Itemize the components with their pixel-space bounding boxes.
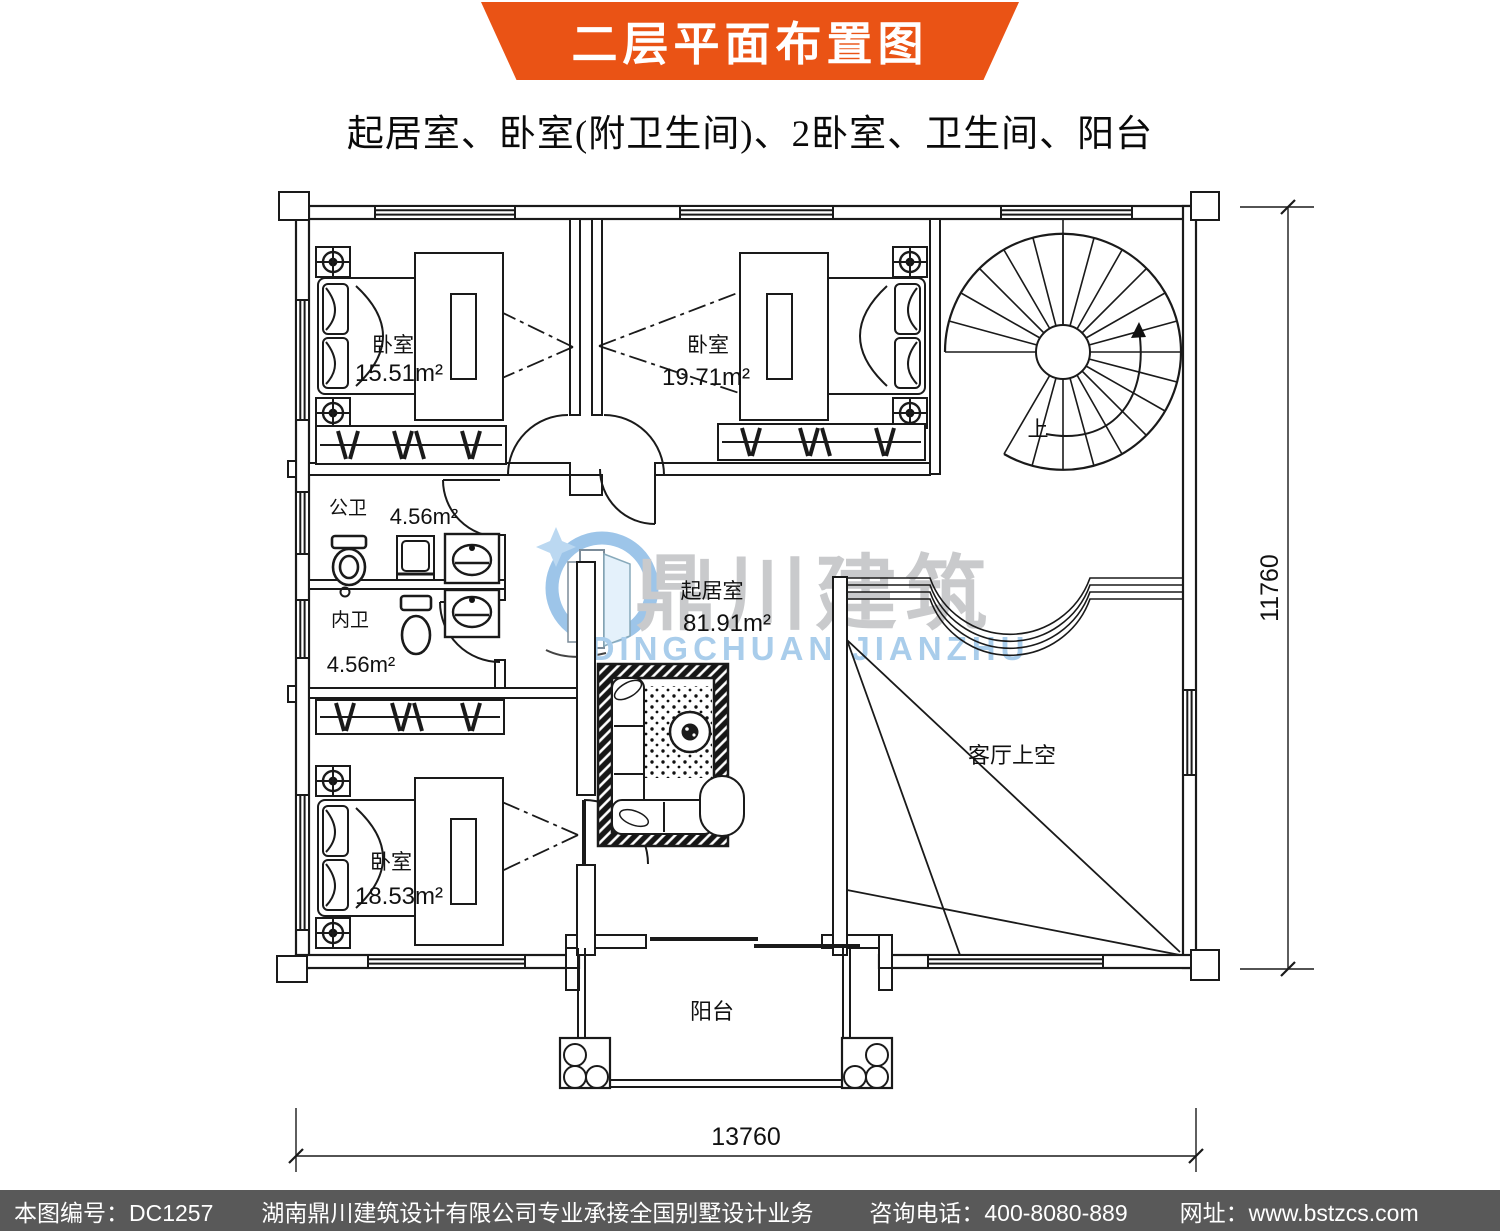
living-room-sofa-set xyxy=(598,664,744,846)
stair-up-label: 上 xyxy=(1028,417,1049,441)
bedroom-bottom-furniture xyxy=(316,700,504,948)
footer-phone: 咨询电话：400-8080-889 xyxy=(869,1194,1127,1228)
toilet-icon xyxy=(332,536,366,585)
footer-website: 网址：www.bstzcs.com xyxy=(1180,1194,1419,1228)
watermark: 鼎川建筑 DINGCHUAN JIANZHU xyxy=(536,527,1029,667)
bathroom-fixtures xyxy=(332,534,499,654)
footer-bar: 本图编号：DC1257 湖南鼎川建筑设计有限公司专业承接全国别墅设计业务 咨询电… xyxy=(0,1190,1500,1231)
sink-icon xyxy=(445,534,499,583)
bedroom-top-mid-furniture xyxy=(718,247,927,460)
void-diagonals xyxy=(847,640,1180,955)
spiral-staircase xyxy=(945,219,1181,470)
floor-plan-drawing: 鼎川建筑 DINGCHUAN JIANZHU xyxy=(0,0,1500,1231)
room-area-living: 81.91m² xyxy=(683,610,771,637)
washer-icon xyxy=(397,536,434,580)
room-area-bedroom-tm: 19.71m² xyxy=(662,364,750,391)
room-area-bedroom-tl: 15.51m² xyxy=(355,360,443,387)
floor-plan-page: 二层平面布置图 起居室、卧室(附卫生间)、2卧室、卫生间、阳台 xyxy=(0,0,1500,1231)
dimension-right: 11760 xyxy=(1256,554,1284,622)
toilet-icon xyxy=(401,596,431,654)
footer-drawing-number: 本图编号：DC1257 xyxy=(14,1194,213,1228)
watermark-brand-en: DINGCHUAN JIANZHU xyxy=(591,630,1030,667)
room-label-balcony: 阳台 xyxy=(690,999,734,1024)
room-label-bath-private: 内卫 xyxy=(331,609,369,631)
room-label-bedroom-tl: 卧室 xyxy=(372,333,414,357)
ottoman xyxy=(700,776,744,836)
room-area-bedroom-bl: 18.53m² xyxy=(355,883,443,910)
room-area-bath-private: 4.56m² xyxy=(327,652,395,677)
dimension-bottom: 13760 xyxy=(711,1123,781,1151)
room-area-bath-public: 4.56m² xyxy=(390,504,458,529)
room-label-bedroom-tm: 卧室 xyxy=(687,333,729,357)
plan-linework xyxy=(277,192,1314,1172)
sink-icon xyxy=(445,590,499,637)
room-label-bath-public: 公卫 xyxy=(329,498,367,519)
room-label-void: 客厅上空 xyxy=(968,743,1056,768)
footer-company: 湖南鼎川建筑设计有限公司专业承接全国别墅设计业务 xyxy=(261,1194,813,1228)
room-label-living: 起居室 xyxy=(681,579,744,603)
room-label-bedroom-bl: 卧室 xyxy=(370,850,412,874)
